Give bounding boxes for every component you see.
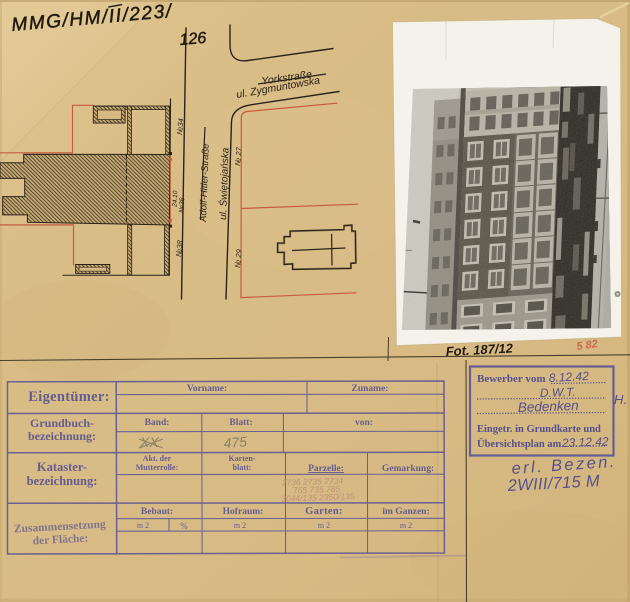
svg-text:Akt. der: Akt. der bbox=[143, 454, 172, 463]
svg-text:475: 475 bbox=[223, 433, 248, 451]
svg-text:Gemarkung:: Gemarkung: bbox=[382, 464, 434, 474]
svg-text:23.12.42: 23.12.42 bbox=[561, 434, 609, 450]
svg-text:im Ganzen:: im Ganzen: bbox=[382, 507, 429, 517]
svg-text:Band:: Band: bbox=[145, 418, 170, 428]
svg-text:Bedenken: Bedenken bbox=[518, 398, 579, 415]
svg-text:bezeichnung:: bezeichnung: bbox=[28, 429, 96, 443]
svg-text:Bewerber vom: Bewerber vom bbox=[477, 373, 546, 385]
svg-text:Mutterrolle:: Mutterrolle: bbox=[136, 463, 179, 472]
svg-text:Zuname:: Zuname: bbox=[352, 384, 389, 394]
svg-text:bezeichnung:: bezeichnung: bbox=[27, 474, 98, 488]
svg-text:von:: von: bbox=[355, 418, 373, 428]
svg-text:Bebaut:: Bebaut: bbox=[141, 507, 173, 517]
svg-text:126: 126 bbox=[179, 30, 207, 49]
svg-text:Karten-: Karten- bbox=[228, 454, 255, 463]
svg-text:Kataster-: Kataster- bbox=[37, 460, 87, 474]
svg-text:m 2: m 2 bbox=[137, 521, 149, 530]
svg-text:Blatt:: Blatt: bbox=[229, 418, 252, 428]
svg-text:№ 29: № 29 bbox=[233, 248, 244, 268]
svg-text:m 2: m 2 bbox=[400, 521, 412, 530]
svg-text:H.: H. bbox=[614, 392, 627, 407]
svg-text:Grundbuch-: Grundbuch- bbox=[30, 416, 94, 430]
svg-text:№38: №38 bbox=[174, 239, 184, 257]
svg-text:8.12.42: 8.12.42 bbox=[548, 369, 589, 385]
svg-text:Eigentümer:: Eigentümer: bbox=[28, 389, 109, 405]
svg-text:Vorname:: Vorname: bbox=[187, 384, 227, 394]
svg-text:Eingetr. in Grundkarte und: Eingetr. in Grundkarte und bbox=[477, 424, 601, 435]
svg-text:Übersichtsplan am: Übersichtsplan am bbox=[477, 437, 562, 450]
svg-text:Garten:: Garten: bbox=[305, 506, 343, 517]
svg-text:№36: №36 bbox=[179, 197, 187, 213]
svg-text:%: % bbox=[180, 521, 188, 531]
svg-text:Parzelle:: Parzelle: bbox=[308, 464, 344, 474]
svg-text:m 2: m 2 bbox=[318, 521, 330, 530]
svg-text:Hofraum:: Hofraum: bbox=[223, 507, 264, 517]
svg-text:№34: №34 bbox=[175, 118, 185, 135]
svg-text:blatt:: blatt: bbox=[233, 463, 252, 472]
svg-text:m 2: m 2 bbox=[234, 521, 246, 530]
svg-text:№ 27: № 27 bbox=[233, 146, 244, 166]
